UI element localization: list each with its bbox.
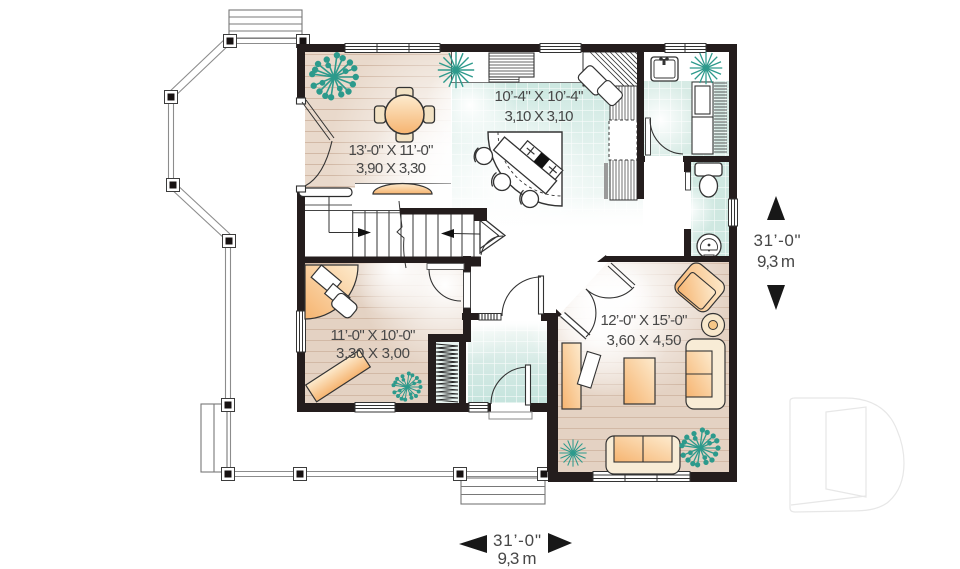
svg-text:9,3 m: 9,3 m: [757, 252, 795, 271]
svg-text:3,10 X 3,10: 3,10 X 3,10: [505, 108, 574, 125]
svg-text:3,30 X 3,00: 3,30 X 3,00: [336, 345, 410, 362]
svg-text:3,60 X 4,50: 3,60 X 4,50: [607, 332, 682, 349]
svg-text:3,90 X 3,30: 3,90 X 3,30: [356, 160, 426, 177]
svg-text:10’-4" X 10’-4": 10’-4" X 10’-4": [495, 88, 584, 105]
svg-text:31’-0": 31’-0": [754, 231, 801, 250]
svg-text:12’-0" X 15’-0": 12’-0" X 15’-0": [601, 312, 688, 329]
svg-text:11’-0" X 10’-0": 11’-0" X 10’-0": [331, 327, 416, 344]
svg-text:13’-0" X 11’-0": 13’-0" X 11’-0": [349, 142, 434, 159]
svg-text:31’-0": 31’-0": [493, 531, 541, 550]
svg-text:9,3 m: 9,3 m: [498, 549, 537, 568]
